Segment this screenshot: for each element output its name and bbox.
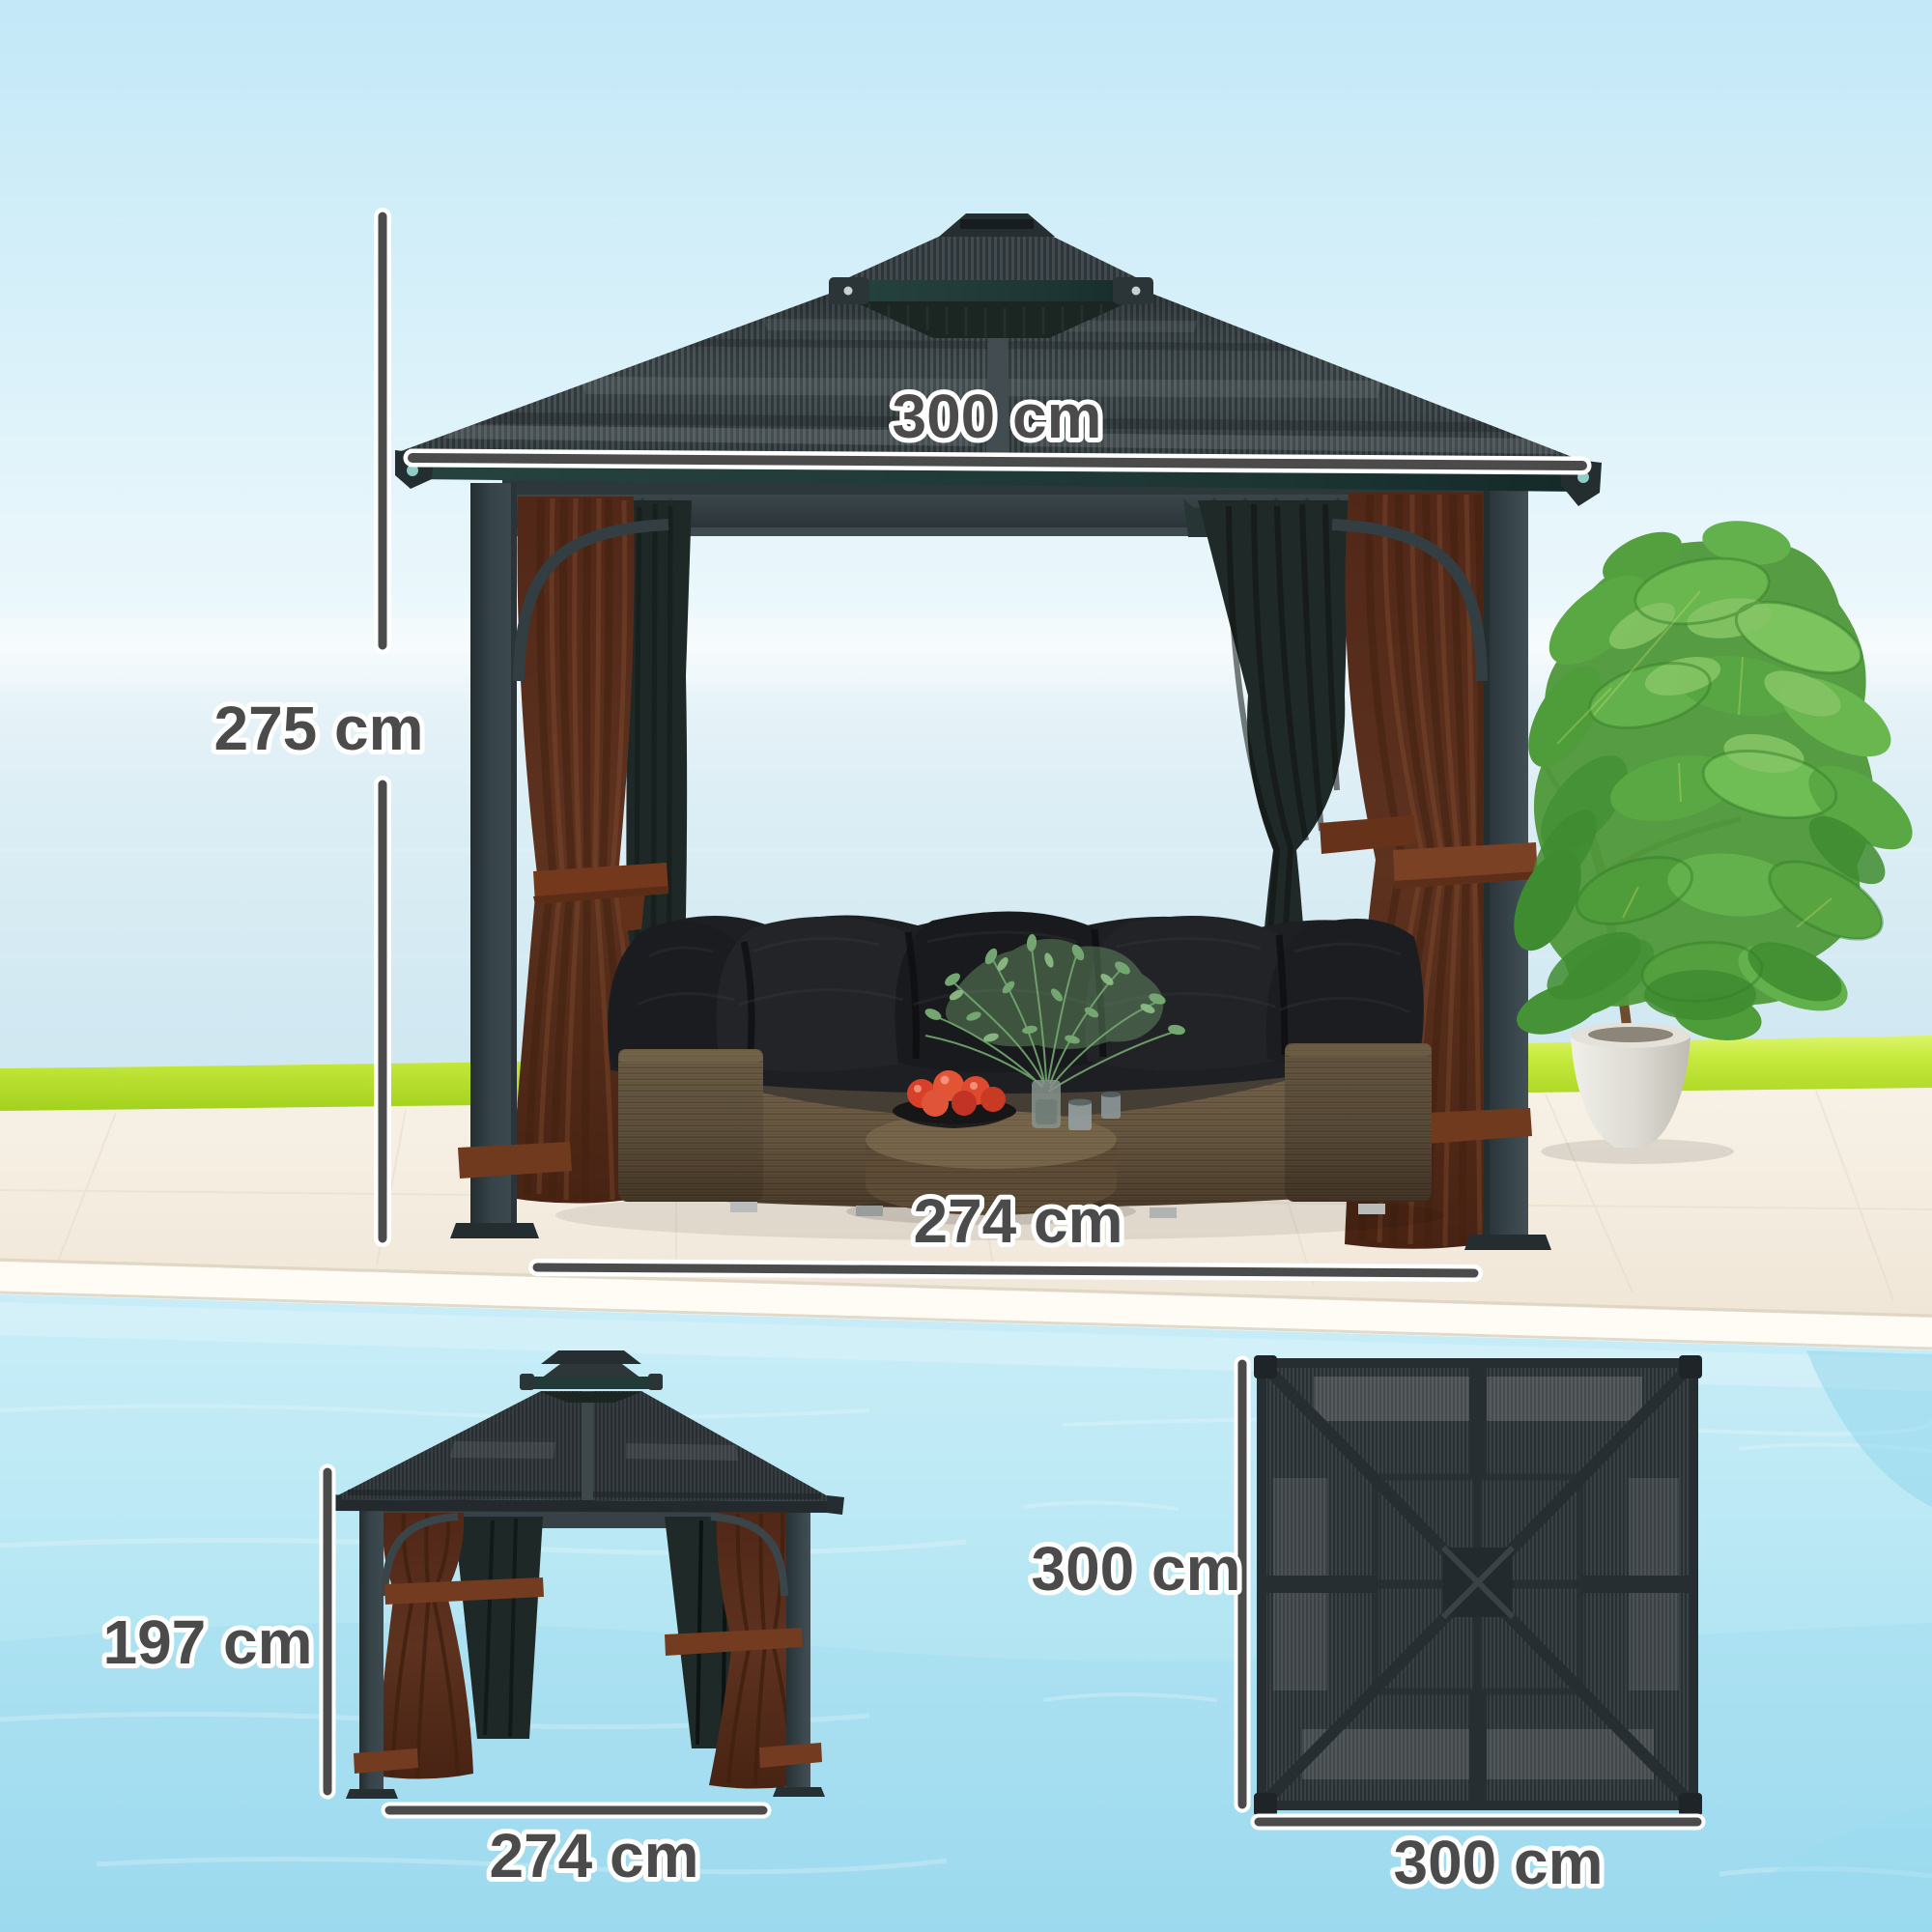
svg-text:274 cm: 274 cm <box>913 1186 1122 1256</box>
svg-text:274 cm: 274 cm <box>489 1821 698 1890</box>
svg-text:275 cm: 275 cm <box>213 694 423 763</box>
svg-text:300 cm: 300 cm <box>892 382 1101 451</box>
svg-text:300 cm: 300 cm <box>1031 1534 1240 1604</box>
svg-text:300 cm: 300 cm <box>1393 1828 1603 1897</box>
svg-text:197 cm: 197 cm <box>102 1607 312 1677</box>
